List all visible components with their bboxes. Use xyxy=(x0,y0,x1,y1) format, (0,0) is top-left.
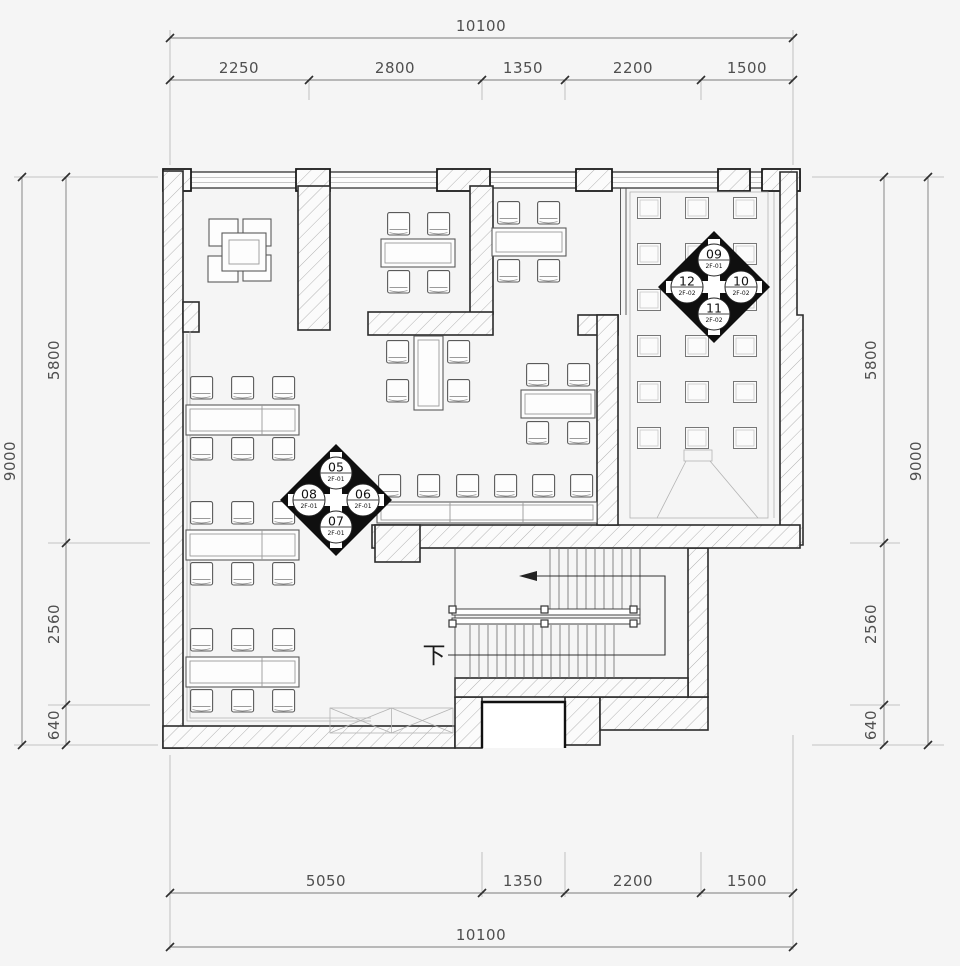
marker-a-left-sheet: 2F-01 xyxy=(300,503,317,510)
mid-south-wall xyxy=(372,525,800,548)
southeast-wall xyxy=(600,697,708,730)
stair-base-wall xyxy=(455,678,688,697)
stair-down-label: 下 xyxy=(423,643,446,669)
left-wall xyxy=(163,171,183,748)
entry-jamb-left xyxy=(455,697,482,748)
marker-a-right-num: 06 xyxy=(355,487,371,502)
partition-1 xyxy=(298,186,330,330)
projection-screen xyxy=(657,450,758,518)
dim-top-seg-3: 1350 xyxy=(503,59,543,77)
marker-a-bottom-sheet: 2F-01 xyxy=(327,530,344,537)
stairs: 下 xyxy=(423,548,666,697)
dimensions-top: 10100 2250 2800 1350 2200 1500 xyxy=(166,17,797,165)
dim-left-seg-3: 640 xyxy=(45,710,63,740)
marker-b-left-num: 12 xyxy=(679,274,695,289)
glass-partition xyxy=(621,188,627,315)
dim-bottom-seg-1: 5050 xyxy=(306,872,346,890)
dimensions-left: 9000 5800 2560 640 xyxy=(1,173,158,749)
mid-south-wall-end xyxy=(375,525,420,562)
entry-jamb-right xyxy=(565,697,600,745)
floor-plan-drawing: 10100 2250 2800 1350 2200 1500 5050 1350… xyxy=(0,0,960,966)
marker-b-top-sheet: 2F-01 xyxy=(705,263,722,270)
dim-left-total: 9000 xyxy=(1,441,19,481)
dim-right-seg-3: 640 xyxy=(862,710,880,740)
lower-flight-treads xyxy=(470,625,614,678)
dim-right-seg-2: 2560 xyxy=(862,604,880,644)
dim-bottom-seg-2: 1350 xyxy=(503,872,543,890)
corner-table-set xyxy=(208,219,271,282)
dim-bottom-seg-4: 1500 xyxy=(727,872,767,890)
dim-left-seg-2: 2560 xyxy=(45,604,63,644)
dim-top-seg-2: 2800 xyxy=(375,59,415,77)
partition-3-vertical xyxy=(597,315,618,525)
long-table-row-2 xyxy=(186,502,299,585)
marker-a-top-sheet: 2F-01 xyxy=(327,476,344,483)
bar-counter xyxy=(377,475,597,523)
marker-b-right-sheet: 2F-02 xyxy=(732,290,749,297)
marker-a-bottom-num: 07 xyxy=(328,514,344,529)
marker-b-left-sheet: 2F-02 xyxy=(678,290,695,297)
dimensions-right: 5800 2560 640 9000 xyxy=(812,173,944,749)
floor-plan-page: 10100 2250 2800 1350 2200 1500 5050 1350… xyxy=(0,0,960,966)
stairhall-right-wall xyxy=(688,548,708,697)
dim-top-seg-1: 2250 xyxy=(219,59,259,77)
dim-top-seg-4: 2200 xyxy=(613,59,653,77)
dim-bottom-seg-3: 2200 xyxy=(613,872,653,890)
dim-left-seg-1: 5800 xyxy=(45,340,63,380)
long-table-row-1 xyxy=(186,377,299,460)
dim-right-total: 9000 xyxy=(907,441,925,481)
dim-top-total: 10100 xyxy=(456,17,506,35)
stair-direction-arrow-icon xyxy=(519,571,537,581)
marker-a-left-num: 08 xyxy=(301,487,317,502)
left-wall-pier xyxy=(183,302,199,332)
marker-b-bottom-sheet: 2F-02 xyxy=(705,317,722,324)
right-wall xyxy=(780,172,803,545)
upper-flight-treads xyxy=(550,548,631,612)
dim-right-seg-1: 5800 xyxy=(862,340,880,380)
dim-top-seg-5: 1500 xyxy=(727,59,767,77)
dim-bottom-total: 10100 xyxy=(456,926,506,944)
long-table-row-3 xyxy=(186,629,299,712)
partition-2-vertical xyxy=(470,186,493,314)
marker-b-right-num: 10 xyxy=(733,274,749,289)
partition-2-wing xyxy=(368,312,493,335)
bottom-wall xyxy=(163,726,455,748)
marker-b-top-num: 09 xyxy=(706,247,722,262)
marker-a-right-sheet: 2F-01 xyxy=(354,503,371,510)
marker-b-bottom-num: 11 xyxy=(706,301,722,316)
entry-recess xyxy=(482,702,565,748)
dimensions-bottom: 5050 1350 2200 1500 10100 xyxy=(166,735,797,951)
marker-a-top-num: 05 xyxy=(328,460,344,475)
